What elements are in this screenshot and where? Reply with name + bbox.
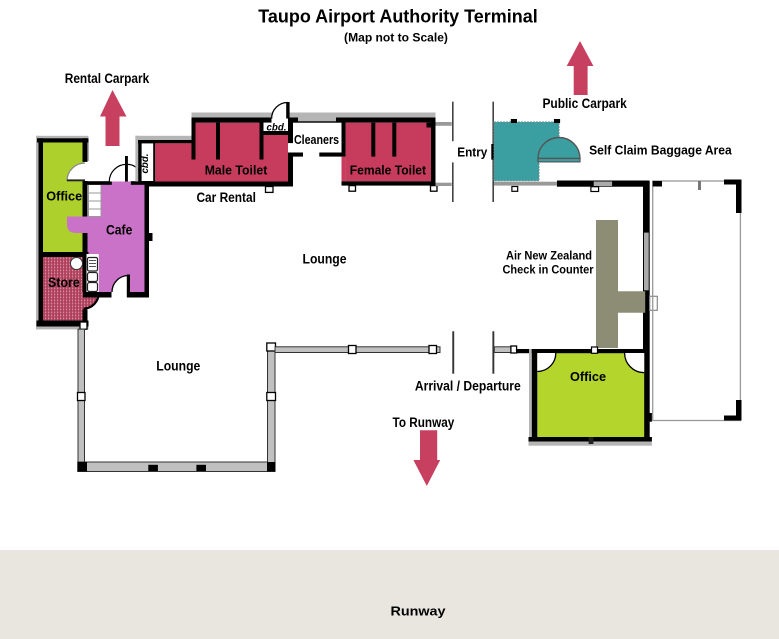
svg-text:Entry: Entry [457, 145, 488, 160]
svg-text:Check in Counter: Check in Counter [503, 265, 594, 277]
svg-text:Arrival / Departure: Arrival / Departure [415, 379, 521, 394]
svg-text:Cleaners: Cleaners [294, 133, 339, 147]
svg-text:Lounge: Lounge [303, 252, 347, 267]
svg-text:Lounge: Lounge [156, 359, 200, 374]
svg-text:Car Rental: Car Rental [196, 190, 256, 205]
svg-text:Male Toilet: Male Toilet [205, 163, 268, 178]
svg-text:cbd.: cbd. [140, 154, 151, 174]
svg-text:Air New Zealand: Air New Zealand [506, 251, 592, 263]
svg-text:Office: Office [46, 188, 82, 203]
svg-text:(Map not to Scale): (Map not to Scale) [344, 31, 448, 45]
svg-text:Public Carpark: Public Carpark [542, 96, 627, 111]
svg-text:Female Toilet: Female Toilet [350, 163, 427, 178]
svg-text:Rental Carpark: Rental Carpark [65, 71, 150, 86]
svg-text:Self Claim Baggage Area: Self Claim Baggage Area [589, 143, 732, 158]
svg-text:Taupo Airport Authority Termin: Taupo Airport Authority Terminal [258, 7, 537, 27]
svg-text:To Runway: To Runway [393, 415, 455, 430]
svg-text:Office: Office [570, 369, 606, 384]
svg-text:Store: Store [48, 275, 80, 290]
svg-text:Cafe: Cafe [106, 223, 133, 238]
svg-text:cbd.: cbd. [267, 123, 287, 134]
svg-text:Runway: Runway [391, 604, 447, 619]
